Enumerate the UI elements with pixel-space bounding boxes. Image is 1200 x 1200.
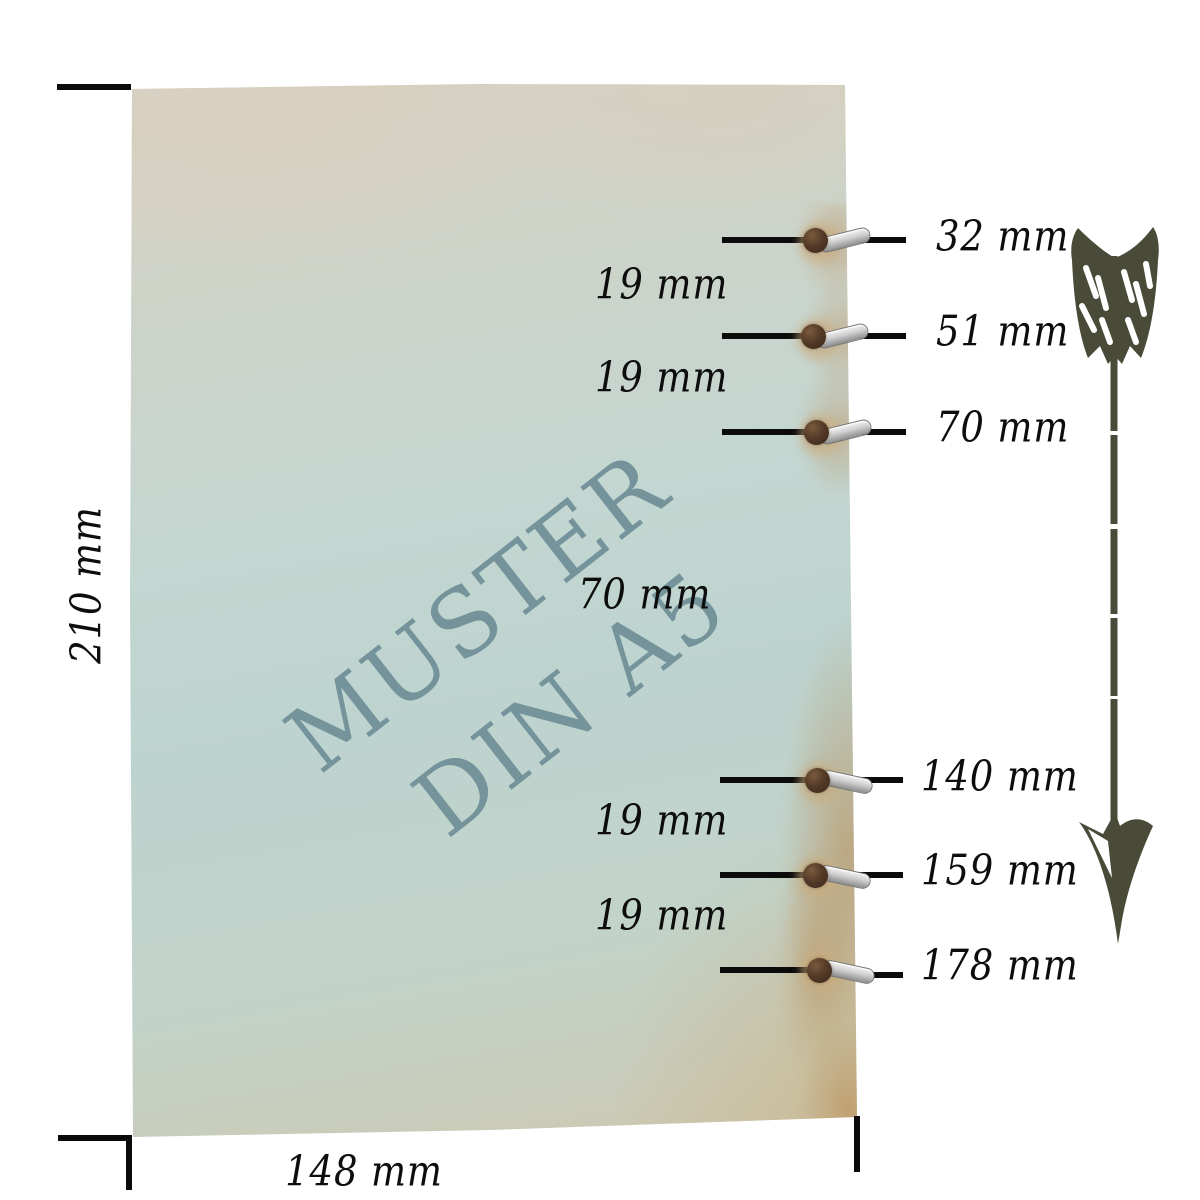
hole-spacing-label: 19 mm xyxy=(595,796,728,845)
hole-position-label: 32 mm xyxy=(936,212,1069,261)
bottom-right-tick xyxy=(854,1116,860,1172)
hole-position-label: 70 mm xyxy=(936,403,1069,452)
punched-hole xyxy=(803,863,828,888)
hole-spacing-label: 19 mm xyxy=(595,891,728,940)
watermark: MUSTER DIN A5 xyxy=(187,350,850,978)
sheet-height-label: 210 mm xyxy=(62,506,111,664)
sheet-width-label: 148 mm xyxy=(285,1147,443,1196)
feathered-down-arrow-icon xyxy=(1058,226,1173,956)
punched-hole xyxy=(801,324,826,349)
punched-hole xyxy=(807,958,832,983)
hole-position-label: 159 mm xyxy=(921,846,1079,895)
top-left-tick xyxy=(57,84,131,90)
bottom-left-tick-horizontal xyxy=(58,1135,130,1141)
hole-spacing-label: 19 mm xyxy=(595,260,728,309)
hole-position-label: 140 mm xyxy=(921,752,1079,801)
dimension-line-left xyxy=(720,967,810,973)
bottom-left-tick-vertical xyxy=(126,1135,132,1190)
diagram-canvas: MUSTER DIN A5 210 mm 148 mm 32 mm 19 mm … xyxy=(0,0,1200,1200)
dimension-line-left xyxy=(720,777,810,783)
hole-position-label: 51 mm xyxy=(936,307,1069,356)
punched-hole xyxy=(805,768,830,793)
hole-spacing-label: 19 mm xyxy=(595,353,728,402)
hole-position-label: 178 mm xyxy=(921,941,1079,990)
hole-spacing-label: 70 mm xyxy=(578,570,711,619)
punched-hole xyxy=(803,228,828,253)
punched-hole xyxy=(804,420,829,445)
